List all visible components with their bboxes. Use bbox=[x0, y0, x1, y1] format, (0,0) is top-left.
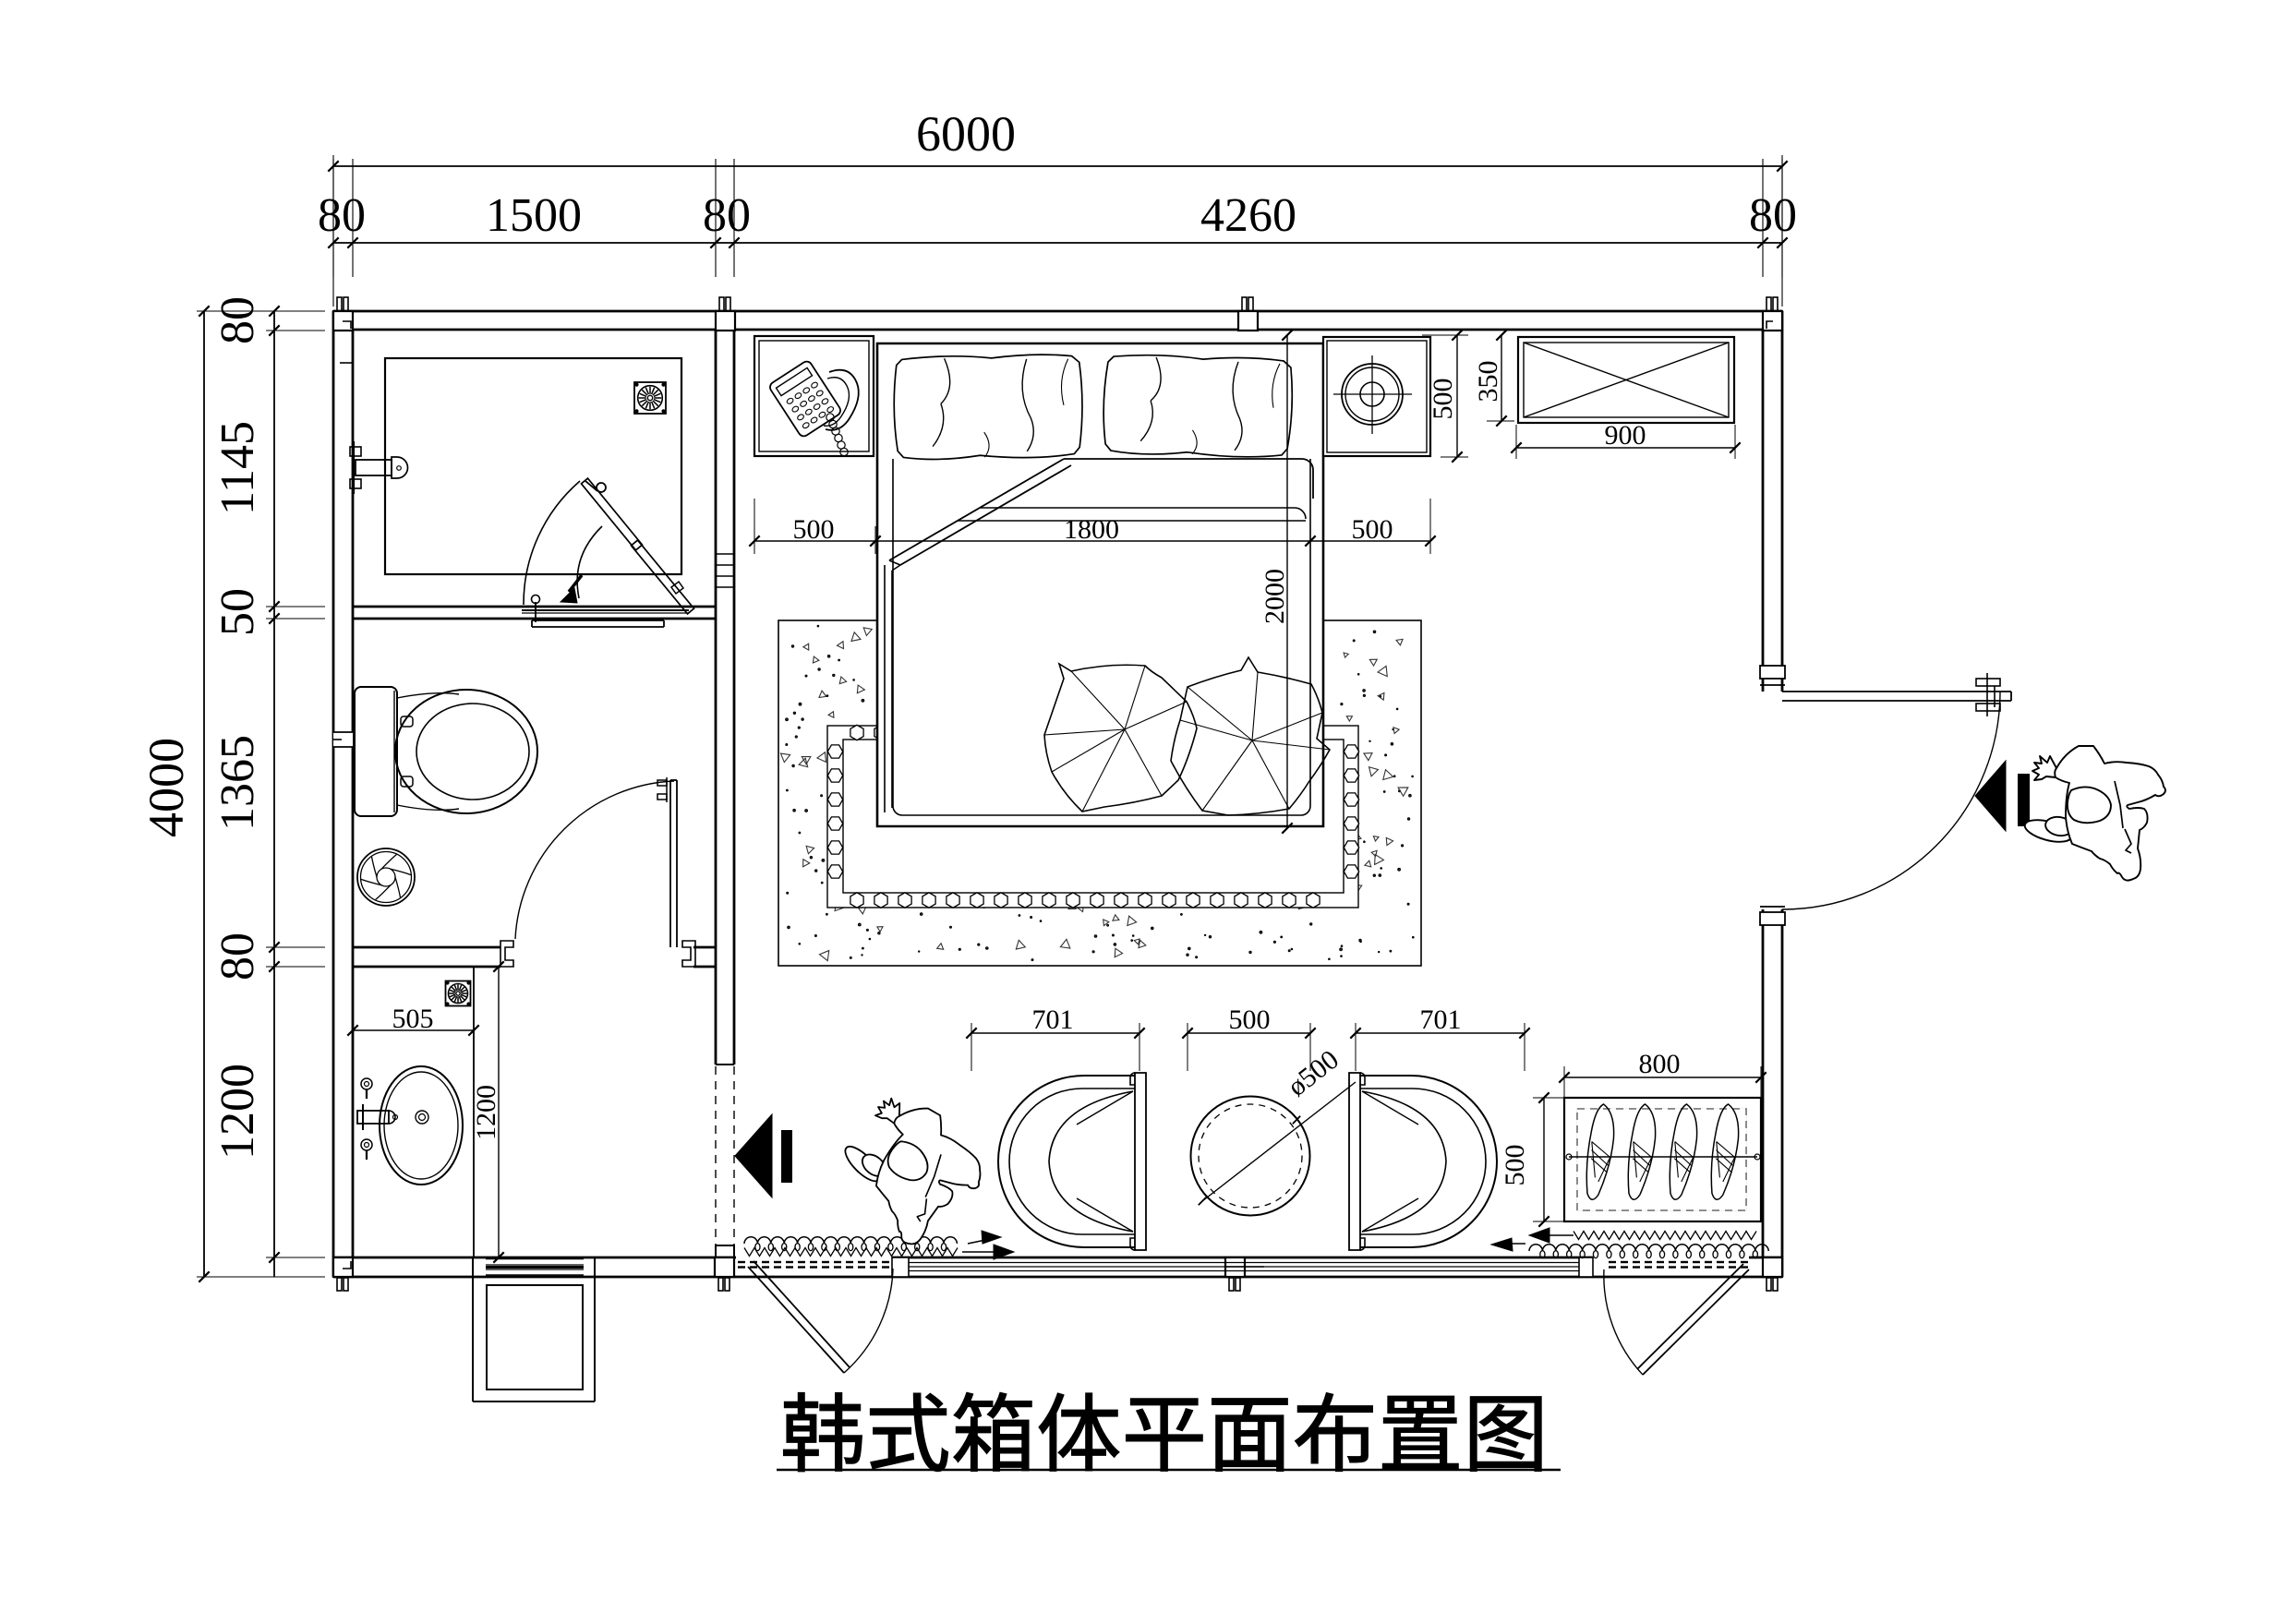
svg-text:4260: 4260 bbox=[1200, 189, 1296, 242]
svg-text:2000: 2000 bbox=[1260, 569, 1290, 624]
svg-text:500: 500 bbox=[793, 514, 835, 545]
svg-text:6000: 6000 bbox=[916, 106, 1016, 162]
svg-text:500: 500 bbox=[1352, 514, 1393, 545]
svg-text:900: 900 bbox=[1605, 420, 1646, 451]
svg-text:1800: 1800 bbox=[1064, 514, 1119, 545]
svg-text:701: 701 bbox=[1420, 1004, 1462, 1035]
svg-text:4000: 4000 bbox=[139, 738, 194, 837]
svg-text:1500: 1500 bbox=[486, 189, 582, 242]
svg-text:505: 505 bbox=[392, 1004, 434, 1034]
svg-text:500: 500 bbox=[1428, 379, 1458, 420]
svg-text:500: 500 bbox=[1229, 1004, 1271, 1035]
svg-text:80: 80 bbox=[1749, 189, 1797, 242]
svg-text:701: 701 bbox=[1032, 1004, 1074, 1035]
svg-text:350: 350 bbox=[1473, 361, 1503, 403]
svg-text:800: 800 bbox=[1639, 1049, 1681, 1079]
svg-text:500: 500 bbox=[1500, 1145, 1530, 1186]
svg-text:1365: 1365 bbox=[211, 735, 264, 831]
svg-text:1200: 1200 bbox=[211, 1064, 264, 1160]
svg-text:80: 80 bbox=[211, 296, 264, 344]
svg-text:80: 80 bbox=[703, 189, 751, 242]
svg-text:1200: 1200 bbox=[471, 1085, 501, 1140]
svg-text:50: 50 bbox=[211, 588, 264, 636]
svg-text:1145: 1145 bbox=[211, 421, 264, 515]
svg-text:80: 80 bbox=[211, 932, 264, 980]
svg-text:80: 80 bbox=[318, 189, 366, 242]
